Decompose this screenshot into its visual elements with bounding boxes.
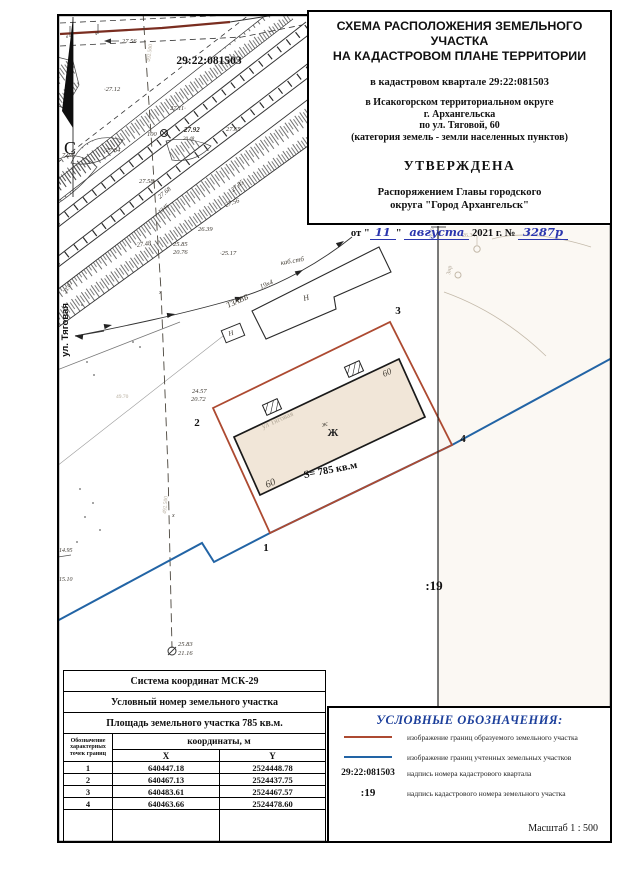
cadastral-scheme-page: 29:22:081503Сул. Тяговая27.56·27.1227.11…: [0, 0, 620, 876]
map-label: 14.95: [59, 547, 73, 554]
city-line: г. Архангельска: [309, 109, 610, 121]
table-row: 4640463.662524478.60: [64, 798, 326, 810]
legend-item-quarter-number: 29:22:081503 надпись номера кадастрового…: [337, 766, 606, 780]
map-label: 21.16: [178, 650, 193, 657]
scale-label: Масштаб 1 : 500: [528, 823, 598, 834]
map-label: Ж: [328, 427, 339, 439]
map-label: 20.48: [183, 137, 195, 142]
map-label: 20.72: [191, 396, 206, 403]
order-line-2: округа "Город Архангельск": [309, 200, 610, 213]
map-label: 27.92: [183, 126, 200, 134]
area-row: Площадь земельного участка 785 кв.м.: [64, 713, 326, 734]
map-label: ул. Тяговая: [60, 303, 71, 357]
red-line-swatch: [344, 736, 392, 738]
map-label: 26.39: [198, 226, 213, 233]
blue-line-swatch: [344, 756, 392, 758]
map-label: ·27.84: [104, 147, 121, 154]
table-row: 1640447.182524448.78: [64, 762, 326, 774]
map-label: 25.85: [173, 241, 188, 248]
map-label: ·27.12: [104, 86, 121, 93]
map-label: х: [158, 290, 162, 296]
map-label: 25.83: [178, 641, 193, 648]
map-label: 27.65: [226, 126, 241, 133]
coord-system-row: Система координат МСК-29: [64, 671, 326, 692]
legend-item-formed-boundary: изображение границ образуемого земельног…: [337, 730, 606, 744]
map-label: 1: [263, 542, 269, 554]
y-column-header: Y: [220, 750, 326, 762]
map-label: 27.58: [139, 178, 154, 185]
map-label: 7.28·: [62, 152, 75, 159]
x-column-header: X: [113, 750, 220, 762]
map-label: 24.57: [192, 388, 207, 395]
map-label: 3: [395, 305, 401, 317]
points-column-header: Обозначение характерных точек границ: [64, 734, 113, 762]
order-line-1: Распоряжением Главы городского: [309, 187, 610, 200]
map-label: 29:22:081503: [176, 55, 241, 67]
map-label: 49.70: [116, 394, 129, 400]
table-row: 3640483.612524467.57: [64, 786, 326, 798]
conditional-number-row: Условный номер земельного участка: [64, 692, 326, 713]
map-label: 2: [194, 417, 200, 429]
coords-column-header: координаты, м: [113, 734, 326, 750]
scheme-title: СХЕМА РАСПОЛОЖЕНИЯ ЗЕМЕЛЬНОГО УЧАСТКА НА…: [309, 19, 610, 64]
table-filler-row: [64, 810, 326, 843]
parcel-number-swatch: :19: [361, 787, 376, 799]
handwritten-day: 11: [370, 225, 396, 240]
legend-item-registered-boundary: изображение границ учтенных земельных уч…: [337, 750, 606, 764]
okrug-line: в Исакогорском территориальном округе: [309, 97, 610, 109]
coordinates-table: Система координат МСК-29 Условный номер …: [63, 670, 326, 843]
street-line: по ул. Тяговой, 60: [309, 120, 610, 132]
date-prefix: от ": [351, 228, 370, 239]
legend: УСЛОВНЫЕ ОБОЗНАЧЕНИЯ: изображение границ…: [327, 706, 612, 843]
cadastral-quarter-line: в кадастровом квартале 29:22:081503: [309, 77, 610, 88]
map-label: 20.76: [173, 249, 188, 256]
legend-item-parcel-number: :19 надпись кадастрового номера земельно…: [337, 786, 606, 800]
title-block: СХЕМА РАСПОЛОЖЕНИЯ ЗЕМЕЛЬНОГО УЧАСТКА НА…: [307, 10, 612, 225]
map-label: 15.10: [59, 577, 73, 583]
map-label: ·25.17: [220, 250, 237, 257]
map-label: х: [171, 513, 175, 519]
table-row: 2640467.132524437.75: [64, 774, 326, 786]
quarter-number-swatch: 29:22:081503: [341, 768, 395, 778]
handwritten-month: августа: [404, 225, 469, 240]
map-label: 100: [147, 131, 158, 138]
map-label: :19: [425, 578, 443, 593]
order-date-line: от "11" августа 2021 г. № 3287р: [309, 225, 610, 239]
map-label: 4: [460, 433, 466, 445]
date-quote: ": [396, 228, 402, 239]
map-label: 27.56: [122, 38, 137, 45]
category-line: (категория земель - земли населенных пун…: [309, 132, 610, 144]
approved-label: УТВЕРЖДЕНА: [309, 158, 610, 174]
date-year: 2021 г. №: [472, 228, 515, 239]
map-label: 27.11·: [170, 105, 186, 112]
handwritten-number: 3287р: [518, 225, 568, 240]
legend-title: УСЛОВНЫЕ ОБОЗНАЧЕНИЯ:: [329, 713, 610, 728]
